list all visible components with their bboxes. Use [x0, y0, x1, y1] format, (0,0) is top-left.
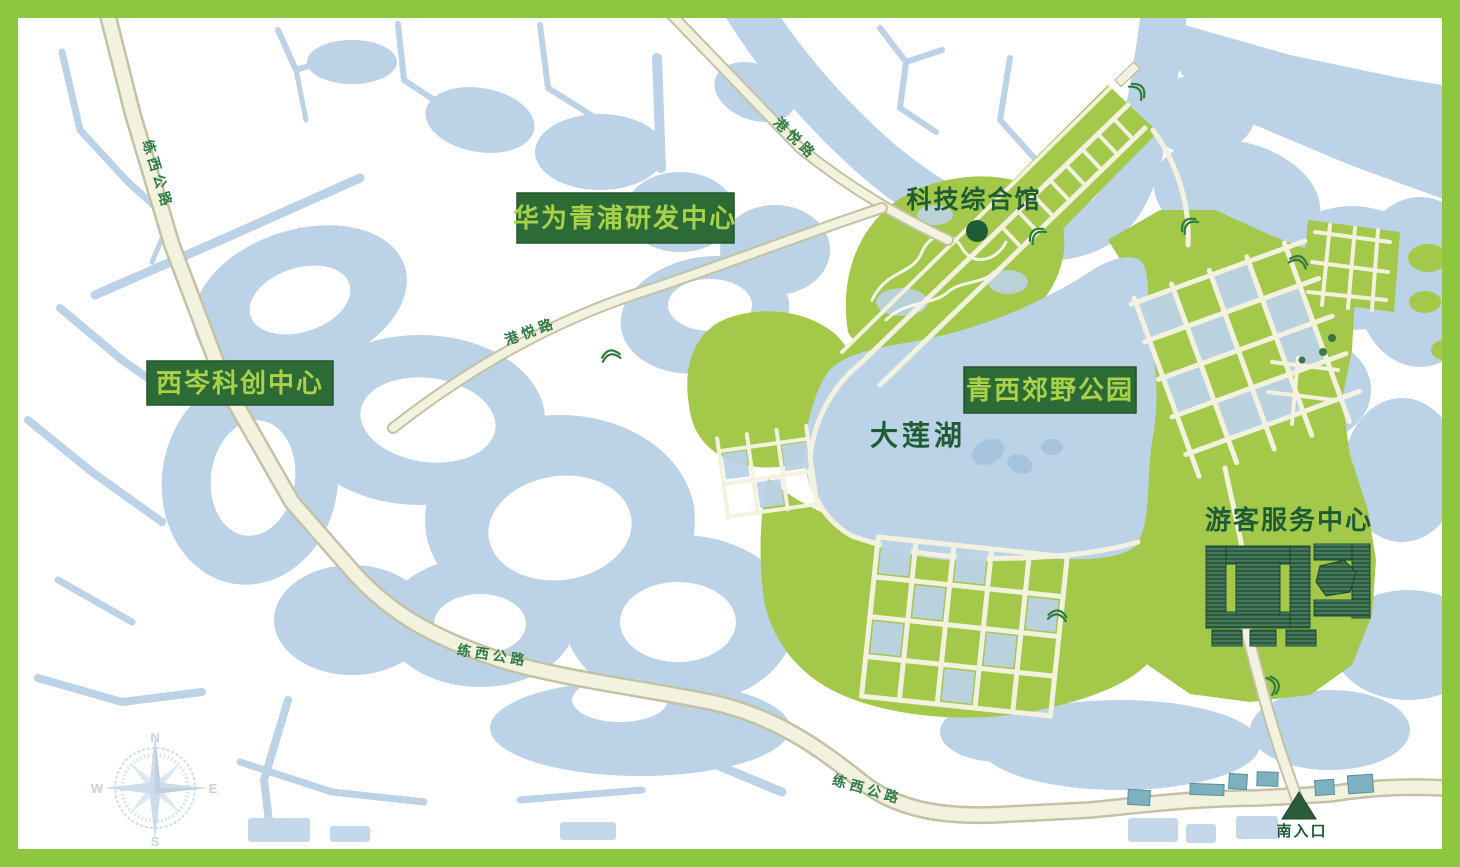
compass-rose-icon: N S W E: [91, 730, 218, 849]
visitor-center-label[interactable]: 游客服务中心: [1205, 505, 1373, 535]
blue-blocks: [248, 816, 1278, 843]
lake-shallow-patch: [1041, 439, 1063, 455]
compass-west-label: W: [91, 781, 104, 796]
badge-xicen-label: 西岑科创中心: [156, 368, 324, 398]
circle-marker-icon[interactable]: [966, 220, 988, 242]
map-canvas: N S W E 港悦路 港悦路 练西公路 练西公路 练西公路 科技综合馆 大莲湖…: [0, 0, 1460, 867]
tech-hall-label: 科技综合馆: [906, 185, 1041, 214]
bridge-icon: [601, 349, 621, 362]
badge-huawei-rd-center[interactable]: 华为青浦研发中心: [513, 193, 737, 243]
badge-xicen-innovation-center[interactable]: 西岑科创中心: [147, 361, 333, 405]
badge-qingxi-country-park[interactable]: 青西郊野公园: [964, 367, 1136, 413]
park-map: N S W E 港悦路 港悦路 练西公路 练西公路 练西公路 科技综合馆 大莲湖…: [0, 0, 1460, 867]
south-entrance-label: 南入口: [1276, 822, 1327, 840]
badge-qingxi-label: 青西郊野公园: [966, 375, 1134, 405]
small-green-plot: [1409, 291, 1441, 313]
compass-east-label: E: [209, 781, 218, 796]
dalian-lake-label[interactable]: 大莲湖: [870, 420, 966, 451]
compass-north-label: N: [150, 730, 159, 745]
badge-huawei-label: 华为青浦研发中心: [513, 203, 737, 233]
compass-south-label: S: [151, 834, 160, 849]
